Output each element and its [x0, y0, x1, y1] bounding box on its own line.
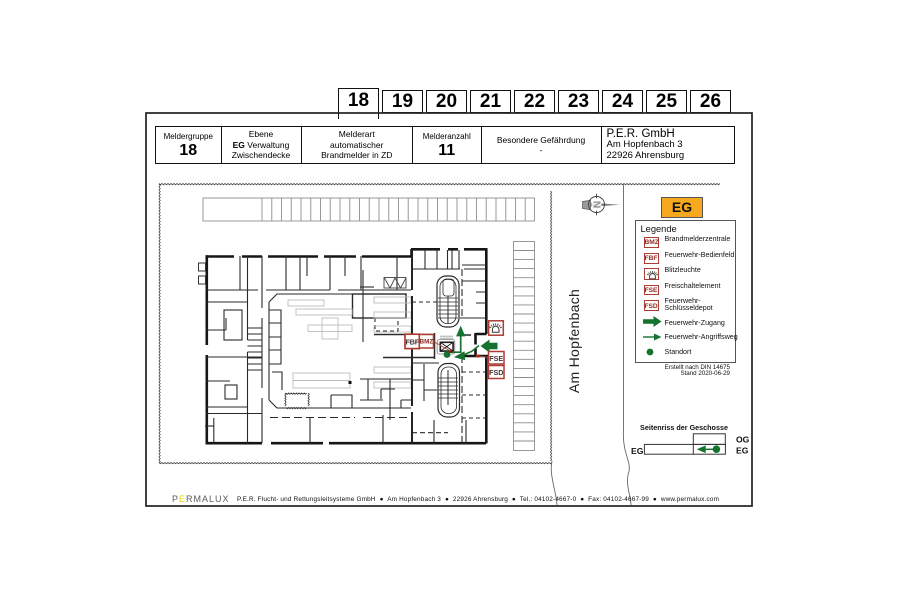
svg-text:EG: EG: [736, 445, 749, 455]
svg-text:OG: OG: [736, 435, 750, 445]
svg-text:FSD: FSD: [489, 368, 503, 377]
svg-text:FSE: FSE: [489, 354, 503, 363]
svg-text:N: N: [591, 201, 603, 209]
svg-text:Am Hopfenbach: Am Hopfenbach: [566, 289, 582, 393]
svg-text:Seitenriss der Geschosse: Seitenriss der Geschosse: [640, 423, 728, 432]
svg-text:BMZ: BMZ: [419, 338, 433, 345]
svg-text:FBF: FBF: [405, 337, 419, 346]
svg-text:EG: EG: [631, 446, 644, 456]
